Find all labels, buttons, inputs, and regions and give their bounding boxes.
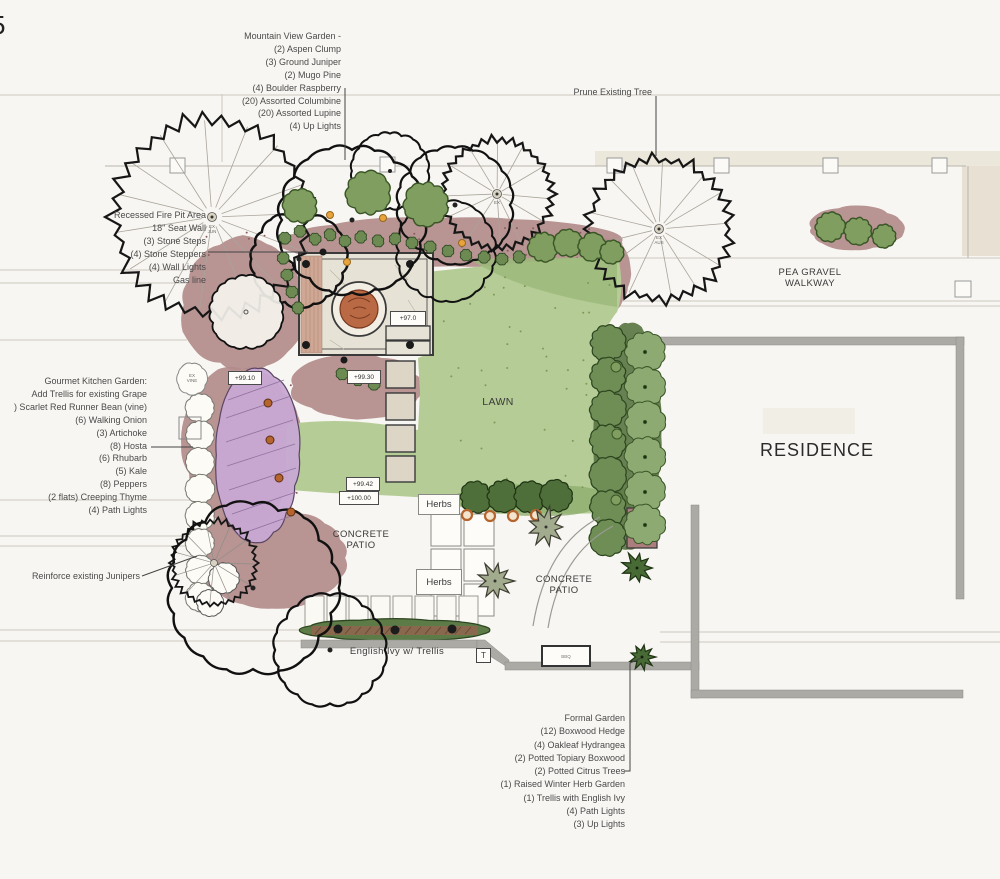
- lawn-speckles-part: [520, 330, 522, 332]
- proposed-tree: [209, 275, 283, 349]
- lawn-speckles-part: [554, 307, 556, 309]
- pot: [508, 511, 518, 521]
- small-shrub: [611, 362, 621, 372]
- lawn-speckles-part: [481, 448, 483, 450]
- hosta: [185, 447, 214, 476]
- lawn-speckles-part: [485, 384, 487, 386]
- bed-speckles-part: [290, 384, 292, 386]
- existing-juniper-tag: EX JUN: [202, 224, 222, 234]
- walkway-post: [955, 281, 971, 297]
- trellis-post: [448, 625, 457, 634]
- pot: [462, 510, 472, 520]
- lawn-speckles-part: [493, 294, 495, 296]
- yard-wall: [691, 505, 699, 698]
- tree-spokes-part: [503, 195, 551, 199]
- bed-speckles-part: [208, 254, 210, 256]
- lawn-speckles-part: [506, 367, 508, 369]
- sheet-number: 5: [0, 10, 5, 41]
- tree-spokes-part: [665, 233, 719, 265]
- bed-speckles-part: [579, 232, 581, 234]
- existing-vine-tag: EX VINE: [183, 373, 201, 383]
- hedge-right-column-part: [643, 523, 646, 526]
- path-light: [275, 474, 283, 482]
- lawn-speckles-part: [504, 276, 506, 278]
- lawn-speckles-part: [443, 320, 445, 322]
- lawn-speckles-part: [566, 388, 568, 390]
- tree-spokes-part: [443, 194, 491, 196]
- flower-clusters-part: [294, 225, 306, 237]
- hosta: [186, 421, 215, 450]
- stepper: [386, 425, 415, 452]
- lawn-speckles-part: [582, 359, 584, 361]
- elevation-marker: +97.0: [390, 311, 426, 326]
- stone-step: [386, 326, 430, 340]
- pot: [485, 511, 495, 521]
- tree-trunks-part: [496, 193, 499, 196]
- elevation-marker: +99.42: [346, 477, 380, 491]
- pea-gravel-label: PEA GRAVEL WALKWAY: [760, 267, 860, 289]
- lawn-speckles-part: [582, 312, 584, 314]
- tree-trunks-part: [658, 228, 661, 231]
- hedge-right-column-part: [643, 455, 646, 458]
- bed-speckles-part: [504, 227, 506, 229]
- up-light: [380, 215, 387, 222]
- flower-clusters-part: [460, 249, 471, 261]
- lawn-speckles-part: [542, 348, 544, 350]
- lawn-speckles-part: [546, 370, 548, 372]
- tree-spokes-part: [500, 147, 523, 190]
- bed-speckles-part: [248, 238, 250, 240]
- residence-wall: [655, 337, 964, 345]
- proposed-tree-centers-part: [453, 203, 458, 208]
- proposed-tree-centers-part: [388, 169, 392, 173]
- bbq-marker: BBQ: [541, 645, 591, 667]
- lawn-speckles-part: [481, 370, 483, 372]
- fence-post: [823, 158, 838, 173]
- elevation-marker: +100.00: [339, 491, 379, 505]
- hedge-right-column-part: [643, 490, 646, 493]
- lawn-speckles-part: [587, 282, 589, 284]
- up-light: [327, 212, 334, 219]
- path-light: [287, 508, 295, 516]
- topiaries-part: [636, 567, 639, 570]
- stone-steppers: [386, 361, 415, 482]
- hedge-right-column-part: [643, 385, 646, 388]
- wall-light: [302, 341, 310, 349]
- concrete-patio-1-label: CONCRETE PATIO: [316, 529, 406, 551]
- tree-trunks-part: [211, 560, 218, 567]
- lawn-speckles-part: [484, 286, 486, 288]
- bed-speckles-part: [588, 228, 590, 230]
- residence-wall: [956, 337, 964, 599]
- tree-spokes-part: [666, 223, 729, 228]
- wall-light: [406, 341, 414, 349]
- proposed-tree-centers-part: [297, 257, 302, 262]
- tree-spokes-part: [664, 175, 704, 223]
- lawn-speckles-part: [609, 284, 611, 286]
- mugo-pine: [282, 189, 316, 223]
- elevation-marker: +99.30: [347, 370, 381, 384]
- patio-wall: [505, 662, 699, 670]
- residence-shade: [763, 408, 855, 434]
- bed-speckles-part: [507, 250, 509, 252]
- stepper: [386, 456, 415, 482]
- annotation-prune-tree: Prune Existing Tree: [573, 86, 652, 99]
- up-light: [344, 259, 351, 266]
- lawn-speckles-part: [544, 429, 546, 431]
- annotation-mountain-view-garden: Mountain View Garden - (2) Aspen Clump (…: [242, 30, 341, 133]
- lawn-speckles-part: [545, 356, 547, 358]
- tree-spokes-part: [205, 120, 212, 206]
- bed-speckles-part: [516, 227, 518, 229]
- bed-dot: [341, 357, 348, 364]
- lawn-speckles-part: [494, 422, 496, 424]
- proposed-tree-centers-part: [251, 586, 256, 591]
- proposed-tree-centers-part: [328, 648, 333, 653]
- up-light: [459, 240, 466, 247]
- boxwood-shrub: [540, 480, 573, 512]
- lawn-speckles-part: [457, 367, 459, 369]
- tree-trunks-part: [211, 216, 214, 219]
- lawn-speckles-part: [509, 326, 511, 328]
- english-ivy-label: English Ivy w/ Trellis: [347, 646, 447, 657]
- herbs-label-1: Herbs: [418, 494, 460, 515]
- tree-spokes-part: [502, 197, 544, 222]
- concrete-patio-2-label: CONCRETE PATIO: [519, 574, 609, 596]
- lawn-speckles-part: [565, 475, 567, 477]
- topiaries-part: [545, 526, 548, 529]
- lawn-speckles-part: [503, 287, 505, 289]
- lawn-speckles-part: [572, 440, 574, 442]
- wall-light: [302, 260, 310, 268]
- lawn-speckles-part: [582, 486, 584, 488]
- trellis-post: [334, 625, 343, 634]
- hedge-right-column-part: [643, 420, 646, 423]
- herb-bed-cell: [431, 514, 461, 546]
- lawn-speckles-part: [588, 312, 590, 314]
- lawn-speckles-part: [567, 369, 569, 371]
- lawn-speckles-part: [524, 285, 526, 287]
- annotation-formal-garden: Formal Garden (12) Boxwood Hedge (4) Oak…: [500, 712, 625, 832]
- ground-juniper: [553, 229, 582, 257]
- proposed-tree-centers-part: [350, 218, 355, 223]
- small-shrub: [611, 495, 621, 505]
- landscape-plan: 5 Mountain View Garden - (2) Aspen Clump…: [0, 0, 1000, 879]
- stepper: [386, 361, 415, 388]
- trellis-post: [391, 626, 400, 635]
- yard-wall: [691, 690, 963, 698]
- tree-spokes-part: [451, 166, 492, 191]
- gate-marker: T: [476, 648, 491, 663]
- lawn-speckles-part: [585, 383, 587, 385]
- stepper: [386, 393, 415, 420]
- shrub: [844, 217, 872, 245]
- path-light: [266, 436, 274, 444]
- flower-clusters-part: [442, 245, 454, 257]
- annotation-reinforce-junipers: Reinforce existing Junipers: [32, 570, 140, 583]
- annotation-fire-pit: Recessed Fire Pit Area 18" Seat Wall (3)…: [114, 209, 206, 286]
- hosta: [185, 394, 214, 423]
- residence-label: RESIDENCE: [760, 440, 874, 461]
- herbs-label-2: Herbs: [416, 569, 462, 595]
- tree-spokes-part: [469, 148, 494, 190]
- bed-speckles-part: [246, 232, 248, 234]
- tree-spokes-part: [659, 159, 662, 222]
- annotation-kitchen-garden: Gourmet Kitchen Garden: Add Trellis for …: [14, 375, 147, 517]
- flower-clusters-part: [339, 235, 351, 246]
- fence-post: [714, 158, 729, 173]
- existing-aspen-tag: EX: [488, 200, 506, 205]
- bed-speckles-part: [413, 233, 415, 235]
- small-shrub: [612, 429, 622, 439]
- tree-spokes-part: [591, 213, 652, 228]
- lawn-speckles-part: [469, 303, 471, 305]
- flower-clusters-part: [292, 302, 303, 314]
- lawn-label: LAWN: [468, 396, 528, 408]
- fence-post: [932, 158, 947, 173]
- lawn-speckles-part: [460, 440, 462, 442]
- existing-pine-tag: EX AUS: [649, 235, 669, 245]
- tree-spokes-part: [665, 193, 719, 225]
- bed-dot: [320, 249, 327, 256]
- path-light: [264, 399, 272, 407]
- bed-speckles-part: [418, 238, 420, 240]
- bed-speckles-part: [532, 227, 534, 229]
- elevation-marker: +99.10: [228, 371, 262, 385]
- lawn-speckles-part: [450, 375, 452, 377]
- topiaries-part: [494, 580, 497, 583]
- hedge-right-column-part: [643, 350, 646, 353]
- lawn-speckles-part: [585, 394, 587, 396]
- lawn-speckles-part: [506, 343, 508, 345]
- boxwood-shrub: [589, 456, 626, 493]
- leader-lines-part: [624, 658, 641, 771]
